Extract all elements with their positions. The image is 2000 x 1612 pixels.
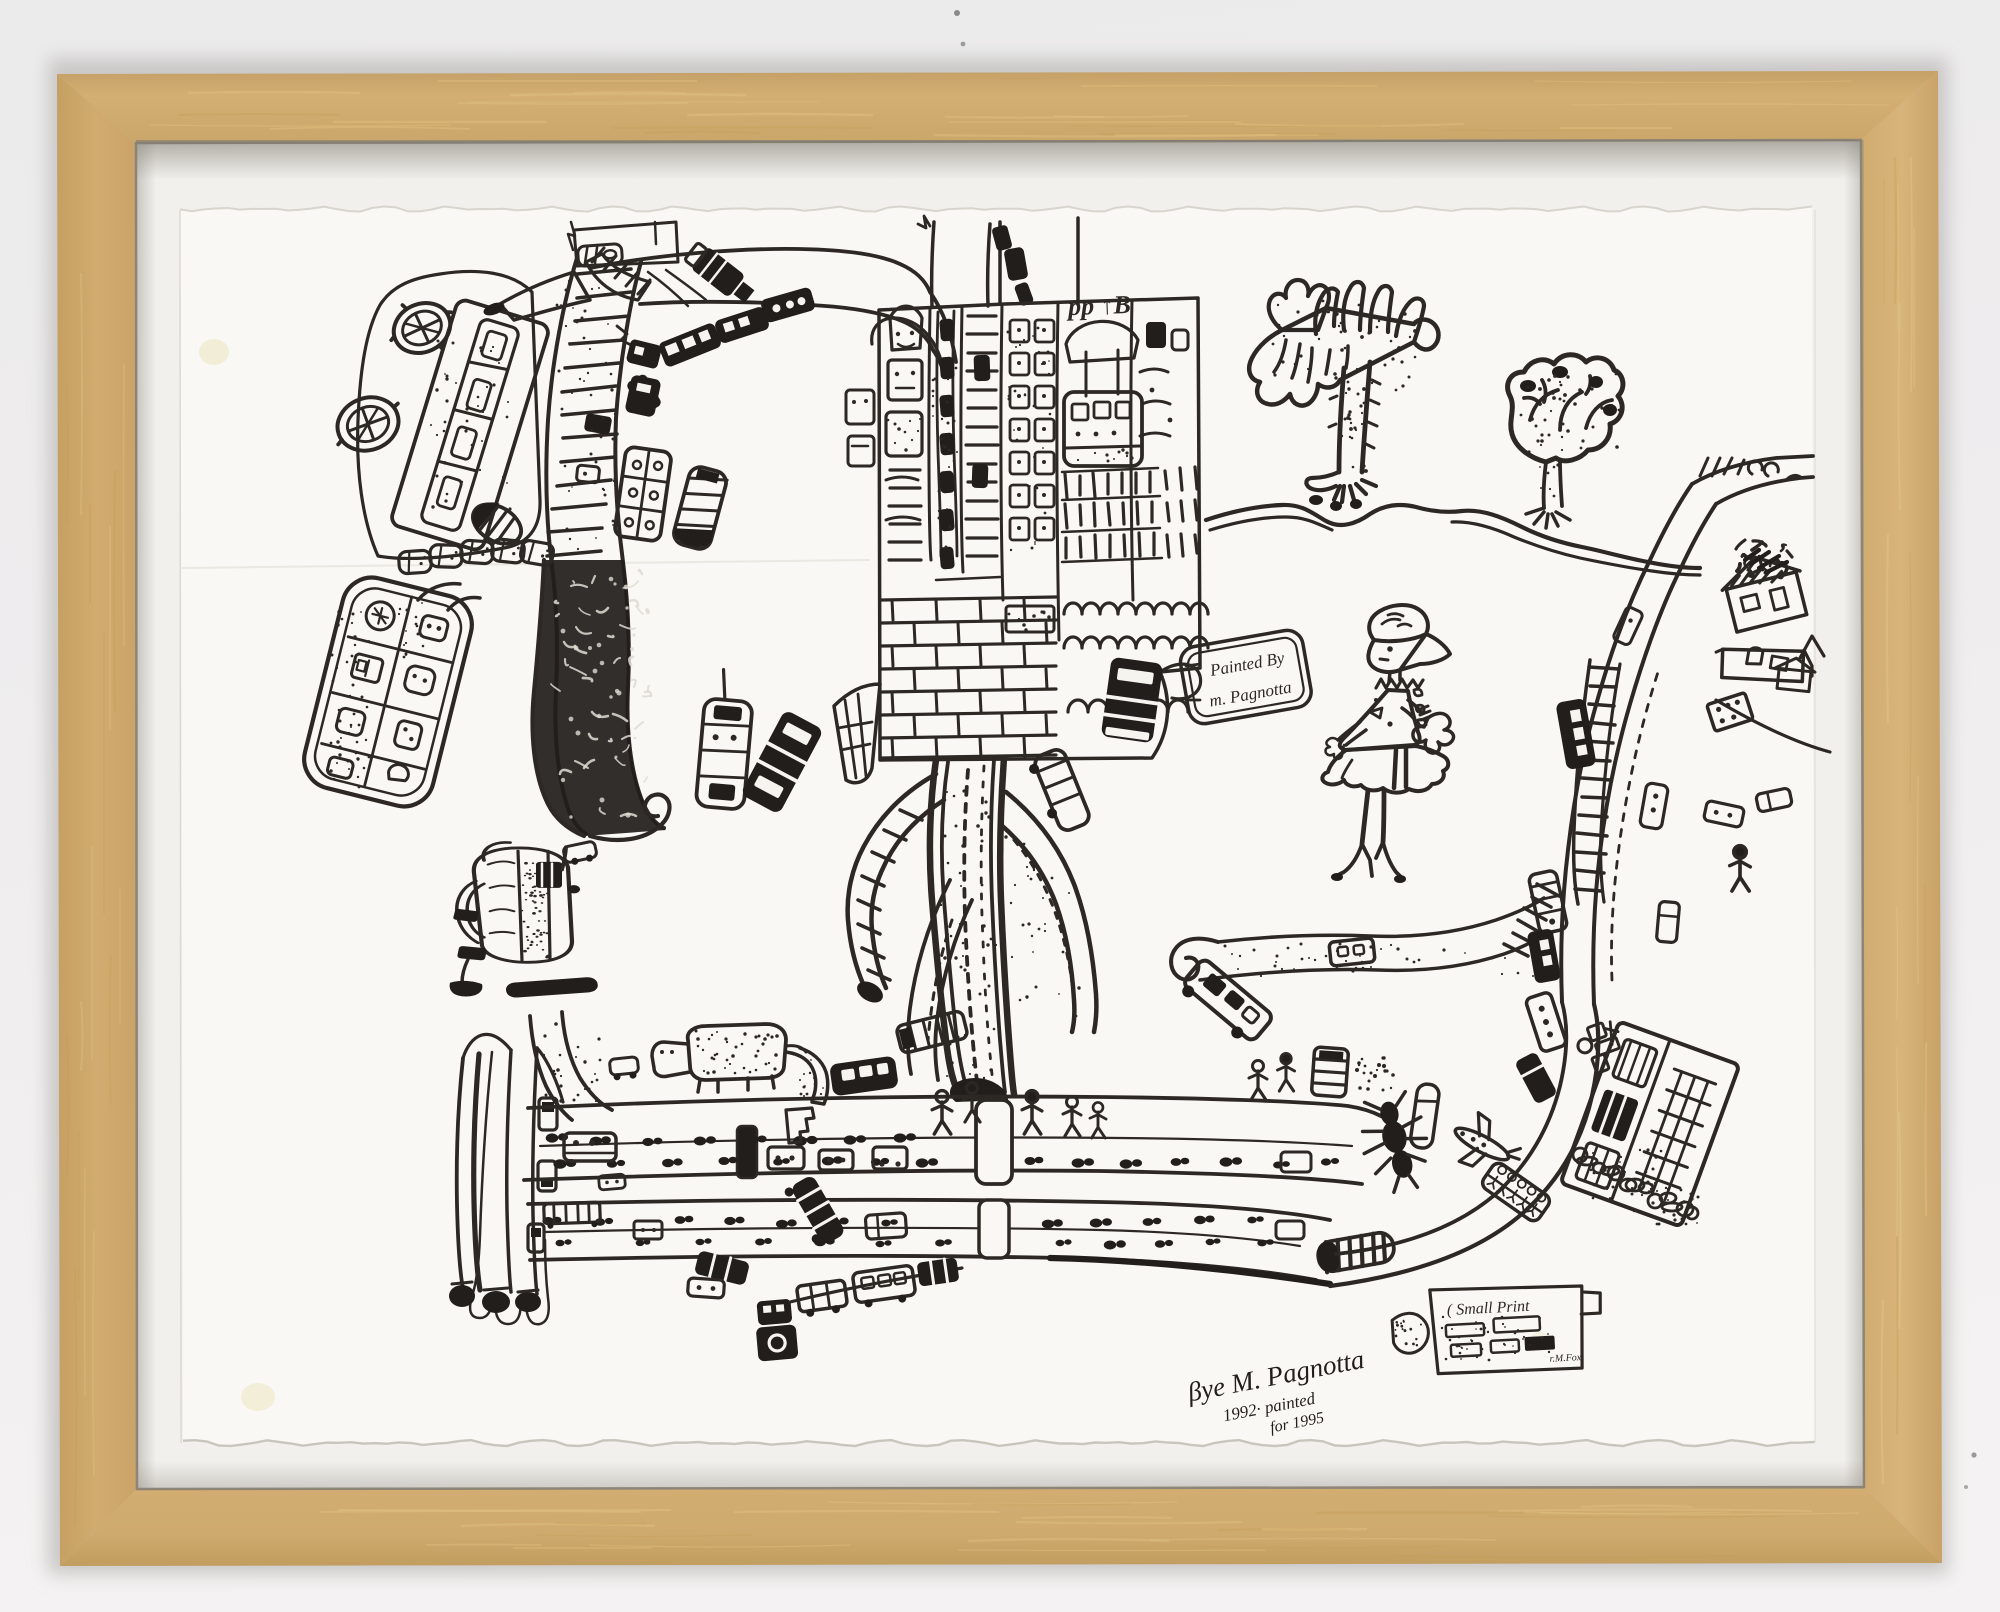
svg-text:r.M.Fox: r.M.Fox — [1549, 1352, 1582, 1365]
svg-text:pp ↑B: pp ↑B — [1066, 290, 1132, 321]
